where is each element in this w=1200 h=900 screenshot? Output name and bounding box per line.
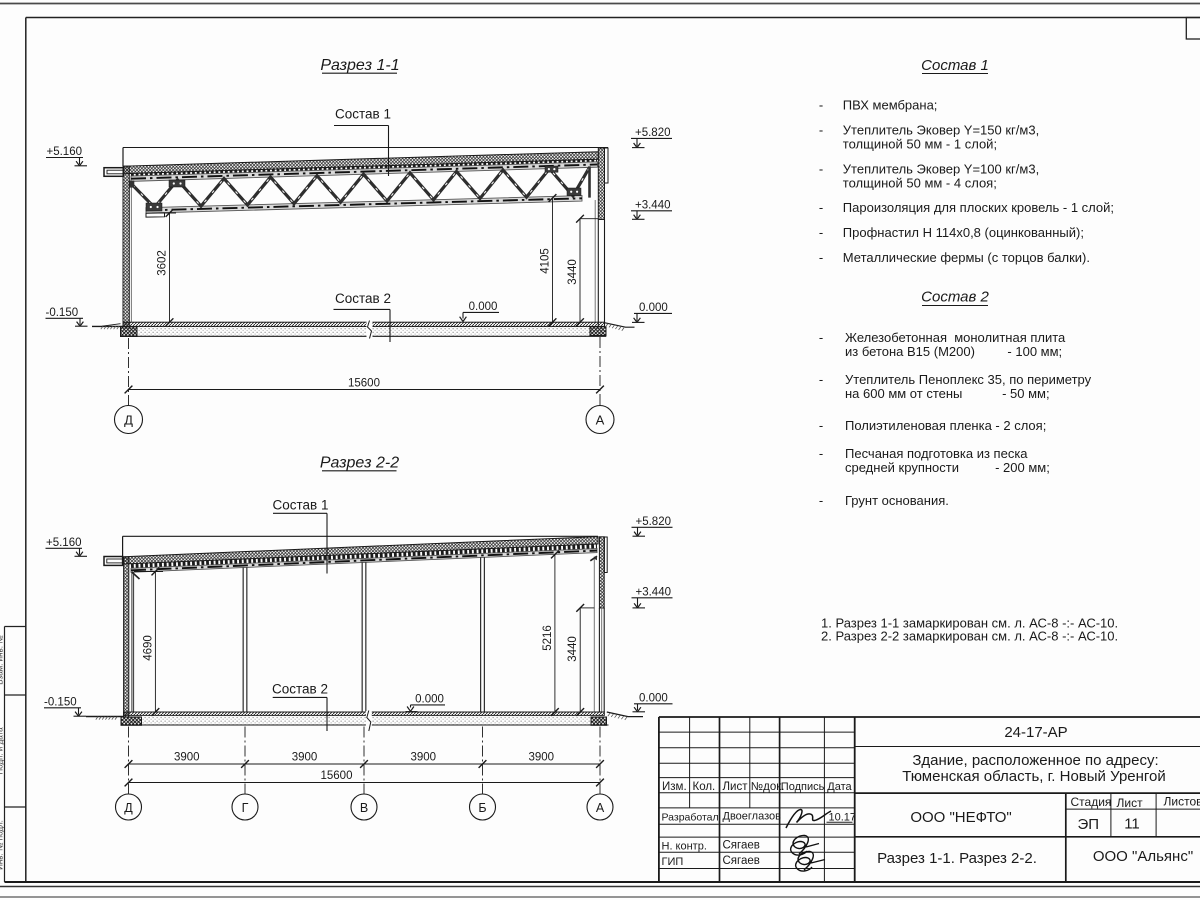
svg-text:ГИП: ГИП	[662, 856, 684, 868]
svg-text:Н. контр.: Н. контр.	[662, 840, 707, 852]
svg-text:на 600 мм от стены -: на 600 мм от стены - 50 мм;	[845, 386, 1050, 401]
svg-text:3440: 3440	[567, 259, 579, 285]
svg-text:Разрез 1-1. Разрез 2-2.: Разрез 1-1. Разрез 2-2.	[877, 850, 1037, 867]
svg-text:А: А	[596, 801, 605, 815]
svg-text:Состав 2: Состав 2	[335, 291, 391, 306]
svg-text:Дата: Дата	[827, 781, 852, 793]
svg-text:Подп. и дата: Подп. и дата	[0, 727, 5, 775]
svg-text:Разрез 1-1: Разрез 1-1	[320, 57, 399, 74]
svg-text:3900: 3900	[174, 751, 200, 763]
svg-text:Состав 2: Состав 2	[272, 682, 328, 697]
svg-text:11: 11	[1124, 815, 1140, 832]
svg-text:Стадия: Стадия	[1071, 795, 1112, 809]
svg-text:+5.160: +5.160	[47, 146, 83, 158]
svg-text:3440: 3440	[567, 636, 579, 662]
svg-text:Профнастил Н 114х0,8 (оцинкова: Профнастил Н 114х0,8 (оцинкованный);	[843, 225, 1084, 240]
svg-text:15600: 15600	[321, 770, 353, 782]
svg-text:Тюменская область, г. Новый Ур: Тюменская область, г. Новый Уренгой	[902, 768, 1166, 785]
svg-text:Здание, расположенное по адрес: Здание, расположенное по адресу:	[912, 752, 1158, 769]
svg-text:Двоеглазов: Двоеглазов	[723, 811, 782, 823]
svg-text:Лист: Лист	[1117, 796, 1144, 810]
svg-text:Утеплитель Эковер Y=150 кг/м3,: Утеплитель Эковер Y=150 кг/м3,	[843, 123, 1039, 138]
svg-text:Состав 1: Состав 1	[335, 107, 391, 122]
svg-text:Состав 2: Состав 2	[921, 289, 989, 306]
svg-text:толщиной 50 мм - 1 слой;: толщиной 50 мм - 1 слой;	[843, 136, 997, 151]
svg-text:2. Разрез 2-2 замаркирован см.: 2. Разрез 2-2 замаркирован см. л. АС-8 -…	[821, 629, 1118, 644]
svg-text:В: В	[360, 801, 368, 815]
svg-text:ЭП: ЭП	[1078, 816, 1100, 833]
svg-text:+3.440: +3.440	[636, 586, 672, 598]
svg-text:Г: Г	[242, 801, 249, 815]
svg-text:ПВХ мембрана;: ПВХ мембрана;	[843, 98, 938, 113]
svg-text:0.000: 0.000	[469, 301, 498, 313]
svg-text:ООО "НЕФТО": ООО "НЕФТО"	[910, 809, 1011, 826]
svg-text:0.000: 0.000	[639, 692, 668, 704]
svg-text:-: -	[819, 493, 823, 508]
svg-text:Разработал: Разработал	[662, 811, 719, 823]
svg-text:Утеплитель Пеноплекс 35, по пе: Утеплитель Пеноплекс 35, по периметру	[845, 372, 1092, 387]
svg-text:Песчаная подготовка из песка: Песчаная подготовка из песка	[845, 446, 1028, 461]
svg-text:из бетона В15 (М200) -: из бетона В15 (М200) - 100 мм;	[845, 344, 1062, 359]
svg-text:-: -	[819, 225, 823, 240]
svg-text:24-17-АР: 24-17-АР	[1004, 724, 1067, 741]
svg-text:Д: Д	[124, 413, 133, 428]
svg-text:Металлические фермы (с торцов: Металлические фермы (с торцов балки).	[843, 250, 1090, 265]
svg-text:Изм.: Изм.	[662, 781, 687, 793]
svg-text:0.000: 0.000	[639, 302, 668, 314]
svg-text:0.000: 0.000	[415, 693, 444, 705]
svg-text:Железобетонная монолитная пли: Железобетонная монолитная плита	[845, 330, 1066, 345]
svg-text:-: -	[819, 200, 823, 215]
svg-text:-: -	[819, 123, 823, 138]
svg-text:Взам. инв. №: Взам. инв. №	[0, 635, 5, 685]
svg-text:Разрез 2-2: Разрез 2-2	[320, 455, 399, 472]
svg-text:-: -	[819, 418, 823, 433]
svg-text:4105: 4105	[540, 248, 552, 274]
svg-text:-: -	[819, 330, 823, 345]
svg-text:Полиэтиленовая пленка - 2 слоя: Полиэтиленовая пленка - 2 слоя;	[845, 418, 1046, 433]
svg-text:-0.150: -0.150	[44, 696, 77, 708]
svg-text:5216: 5216	[542, 625, 554, 651]
svg-text:средней крупности - 2: средней крупности - 200 мм;	[845, 460, 1050, 475]
svg-text:-: -	[819, 98, 823, 113]
svg-text:+3.440: +3.440	[635, 199, 671, 211]
svg-text:3602: 3602	[157, 250, 169, 276]
svg-text:Сягаев: Сягаев	[723, 840, 760, 852]
svg-text:3900: 3900	[529, 751, 555, 763]
svg-text:+5.820: +5.820	[635, 127, 671, 139]
svg-text:толщиной 50 мм - 4 слоя;: толщиной 50 мм - 4 слоя;	[843, 175, 997, 190]
svg-text:3900: 3900	[411, 751, 437, 763]
svg-text:4690: 4690	[142, 635, 154, 661]
svg-text:Состав 1: Состав 1	[273, 498, 329, 513]
svg-text:Подпись: Подпись	[781, 781, 825, 793]
svg-text:Сягаев: Сягаев	[723, 855, 760, 867]
svg-text:+5.820: +5.820	[636, 516, 672, 528]
svg-text:Д: Д	[124, 801, 133, 815]
svg-text:Утеплитель Эковер Y=100 кг/м3,: Утеплитель Эковер Y=100 кг/м3,	[843, 162, 1039, 177]
svg-text:-: -	[819, 250, 823, 265]
svg-text:3900: 3900	[292, 751, 318, 763]
svg-text:-0.150: -0.150	[46, 307, 79, 319]
svg-text:Пароизоляция для плоских крове: Пароизоляция для плоских кровель - 1 сло…	[843, 200, 1114, 215]
svg-text:-: -	[819, 446, 823, 461]
svg-text:Листов: Листов	[1164, 795, 1200, 809]
svg-text:ООО "Альянс": ООО "Альянс"	[1093, 848, 1193, 865]
svg-text:Грунт основания.: Грунт основания.	[845, 493, 949, 508]
svg-text:№док.: №док.	[751, 781, 785, 793]
svg-text:+5.160: +5.160	[46, 537, 82, 549]
svg-text:Состав 1: Состав 1	[921, 57, 989, 74]
svg-text:Лист: Лист	[723, 781, 749, 793]
svg-text:Инв. № подл.: Инв. № подл.	[0, 820, 5, 870]
svg-text:Кол.: Кол.	[693, 781, 716, 793]
svg-text:-: -	[819, 162, 823, 177]
svg-text:-: -	[819, 372, 823, 387]
svg-text:А: А	[596, 413, 605, 428]
svg-text:15600: 15600	[348, 378, 380, 390]
svg-text:Б: Б	[478, 801, 486, 815]
svg-text:10.17: 10.17	[829, 812, 857, 824]
